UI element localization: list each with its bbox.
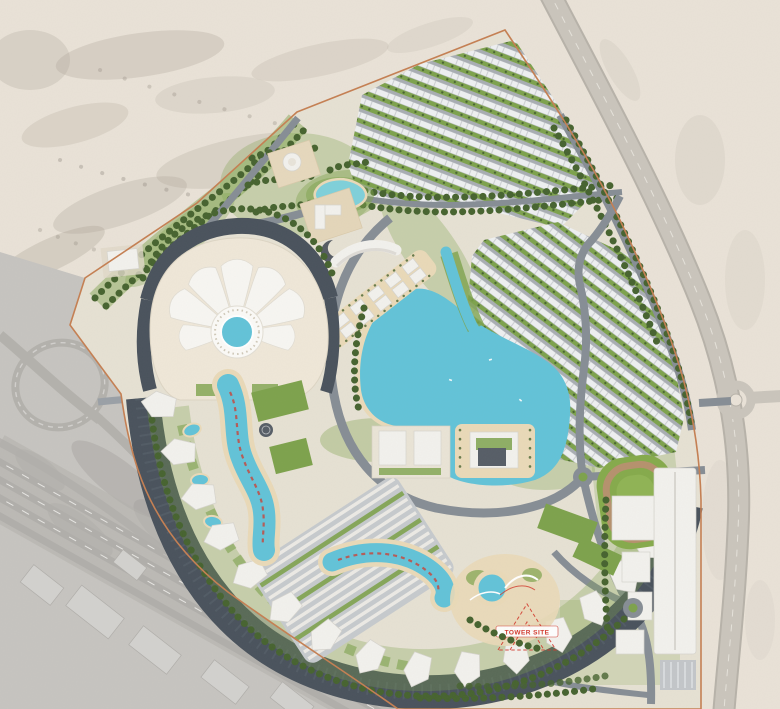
texture-overlay — [0, 0, 780, 709]
masterplan-aerial-map: TOWER SITE — [0, 0, 780, 709]
masterplan-svg: TOWER SITE — [0, 0, 780, 709]
